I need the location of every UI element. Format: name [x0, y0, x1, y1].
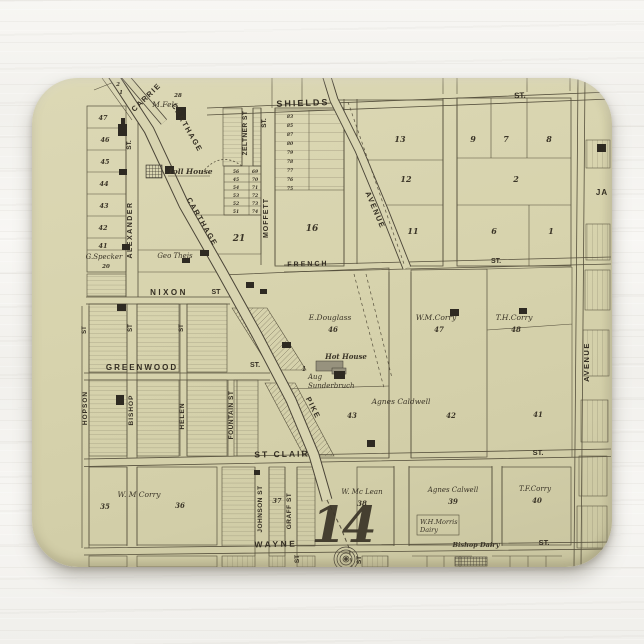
- moffett-st-label: ST.: [261, 118, 268, 128]
- bishop-label: BISHOP: [128, 395, 135, 426]
- agnes-sw-label: Agnes Calwell: [427, 486, 478, 494]
- svg-text:85: 85: [287, 123, 293, 129]
- top-lot-1: 1: [119, 90, 123, 96]
- svg-text:74: 74: [252, 209, 258, 215]
- avenue-right-label: AVENUE: [582, 342, 591, 382]
- b2: 2: [512, 174, 519, 184]
- product-photo: { "scene": { "description": "Vintage pla…: [0, 0, 644, 644]
- lot35: 35: [100, 502, 110, 511]
- helen-label: HELEN: [179, 402, 186, 429]
- g-specker-lot: 20: [101, 264, 110, 270]
- wayne-label: WAYNE: [254, 539, 297, 550]
- shields-st-label: ST.: [514, 91, 526, 100]
- toll-house-label: Toll House: [168, 167, 213, 176]
- plate-number: 14: [311, 495, 374, 554]
- lot39: 39: [448, 497, 458, 506]
- lot42: 42: [446, 411, 456, 420]
- svg-text:70: 70: [252, 177, 259, 183]
- left-lot-47: 47: [98, 114, 108, 122]
- moffett-label: MOFFETT: [263, 198, 270, 238]
- m-fels-label: M.Fels: [151, 100, 178, 109]
- svg-text:56: 56: [233, 169, 240, 175]
- th-corry-label: T.H.Corry: [496, 313, 534, 322]
- svg-text:71: 71: [252, 185, 258, 191]
- svg-text:53: 53: [233, 193, 239, 199]
- zeltner-label: ZELTNER ST: [242, 111, 249, 156]
- hopson-label: HOPSON: [82, 391, 89, 425]
- e-douglass-label: E.Douglass: [308, 313, 352, 322]
- french-label: FRENCH: [287, 260, 328, 268]
- stub-st-2-label: ST: [356, 556, 363, 564]
- top-lot-2: 2: [115, 82, 120, 88]
- lot41: 41: [533, 410, 543, 419]
- greenwood-st-label: ST.: [250, 362, 260, 369]
- greenwood-label: GREENWOOD: [106, 363, 178, 372]
- alexander-label: ALEXANDER: [127, 201, 134, 258]
- aug-label-1: Aug: [307, 373, 323, 381]
- b1: 1: [548, 226, 554, 236]
- left-lot-42: 42: [98, 224, 108, 232]
- ja-label: JA: [596, 188, 608, 197]
- french-st-label: ST.: [491, 258, 501, 265]
- wm-corry-label: W.M.Corry: [416, 313, 457, 322]
- lot16: 16: [306, 224, 319, 234]
- helen-st-label: ST: [179, 324, 185, 332]
- svg-text:83: 83: [287, 114, 293, 120]
- svg-text:78: 78: [287, 159, 294, 165]
- mousepad: SHIELDS ST. FRENCH ST. NIXON ST GREENWOO…: [32, 78, 612, 567]
- svg-text:75: 75: [287, 186, 293, 192]
- st-clair-right-label: ST.: [533, 448, 544, 457]
- hopson-st-label: ST: [82, 326, 88, 334]
- svg-text:54: 54: [233, 185, 239, 191]
- svg-text:45: 45: [233, 177, 239, 183]
- wedge-21: 21: [232, 234, 246, 244]
- wm-corry-lot: 47: [434, 325, 444, 334]
- svg-text:72: 72: [252, 193, 258, 199]
- graff-label: GRAFF ST: [286, 493, 293, 530]
- left-lot-44: 44: [99, 180, 109, 188]
- plat-map: SHIELDS ST. FRENCH ST. NIXON ST GREENWOO…: [32, 78, 612, 567]
- svg-text:80: 80: [287, 141, 294, 147]
- b6: 6: [491, 226, 497, 236]
- bishop-st-label: ST: [128, 324, 134, 332]
- m-fels-lot: 28: [173, 93, 182, 99]
- stub-st-1-label: ST: [294, 555, 301, 563]
- st-clair-label: ST CLAIR: [254, 449, 309, 460]
- svg-text:73: 73: [252, 201, 258, 207]
- bishop-dairy-building: [455, 557, 487, 566]
- alexander-st-label: ST.: [126, 140, 133, 150]
- b11: 11: [407, 226, 418, 236]
- b9: 9: [470, 134, 476, 144]
- b8: 8: [546, 134, 552, 144]
- left-lot-46: 46: [100, 136, 110, 144]
- aug-label-2: Sunderbruch: [308, 382, 355, 390]
- agnes-mid-label: Agnes Caldwell: [371, 397, 431, 406]
- church-building: [118, 124, 127, 136]
- nixon-label: NIXON: [150, 288, 188, 297]
- fountain-label: FOUNTAIN ST: [228, 391, 235, 440]
- b13: 13: [394, 134, 406, 144]
- lot40: 40: [532, 496, 542, 505]
- svg-text:51: 51: [233, 209, 239, 215]
- lot36: 36: [175, 501, 185, 510]
- b7: 7: [503, 134, 509, 144]
- hot-house-label: Hot House: [324, 352, 367, 361]
- nixon-st-label: ST: [212, 289, 222, 296]
- left-lot-45: 45: [100, 158, 110, 166]
- left-lot-41: 41: [98, 242, 107, 250]
- svg-text:79: 79: [287, 150, 294, 156]
- johnson-label: JOHNSON ST: [257, 485, 264, 532]
- b12: 12: [400, 174, 412, 184]
- wm-corry-sw-label: W. M Corry: [118, 490, 162, 499]
- wayne-right-label: ST.: [539, 538, 550, 547]
- wh-morris-label-2: Dairy: [419, 526, 438, 534]
- svg-text:69: 69: [252, 169, 259, 175]
- e-douglass-lot: 46: [328, 325, 338, 334]
- svg-text:76: 76: [287, 177, 294, 183]
- th-corry-lot: 48: [511, 325, 521, 334]
- misc-1: 1: [302, 366, 306, 373]
- wh-morris-label-1: W.H.Morris: [420, 518, 458, 526]
- tf-corry-label: T.F.Corry: [519, 485, 552, 493]
- g-specker-label: G.Specker: [86, 253, 123, 261]
- svg-text:77: 77: [287, 168, 294, 174]
- bishop-dairy-label: Bishop Dairy: [451, 541, 500, 549]
- lot37: 37: [272, 497, 282, 505]
- svg-text:52: 52: [233, 201, 239, 207]
- lot43: 43: [347, 411, 357, 420]
- toll-house-building: [146, 165, 162, 178]
- geo-theis-label: Geo Theis: [157, 252, 193, 260]
- carthage-upper-label: CARTHAGE: [170, 102, 205, 154]
- svg-text:87: 87: [287, 132, 294, 138]
- shields-label: SHIELDS: [276, 97, 329, 109]
- left-lot-43: 43: [99, 202, 109, 210]
